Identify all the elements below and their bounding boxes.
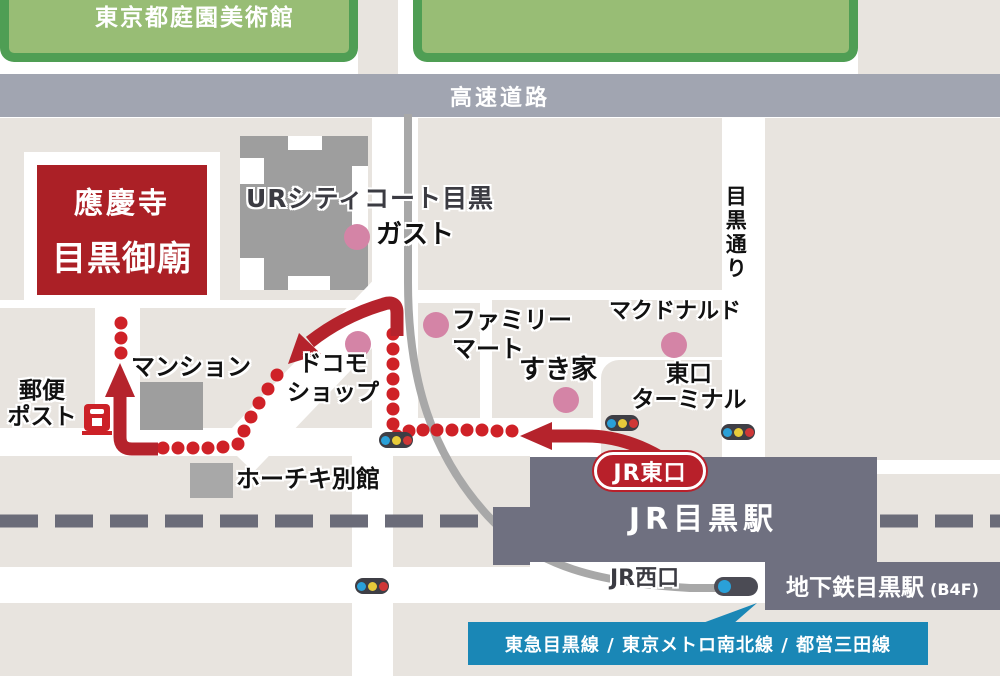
ur-city-court-label: URシティコート目黒 (246, 184, 494, 214)
mansion-label: マンション (131, 353, 251, 382)
postbox-label: 郵便 ポスト (2, 379, 82, 431)
traffic-light-icon (721, 424, 755, 440)
destination-box-inner: 應慶寺 目黒御廟 (37, 165, 207, 295)
traffic-light-icon (379, 432, 413, 448)
poi-dot-gusto (344, 224, 370, 250)
postbox-icon (82, 404, 112, 436)
access-map: 東京都庭園美術館 高速道路 (0, 0, 1000, 676)
traffic-light-icon (355, 578, 389, 594)
subway-station-floor: (B4F) (930, 580, 979, 599)
jr-meguro-station-building (493, 507, 530, 565)
poi-dot-mcdonalds (661, 332, 687, 358)
docomo-label: ドコモ ショップ (283, 350, 383, 408)
train-lines-band: 東急目黒線 / 東京メトロ南北線 / 都営三田線 (468, 622, 928, 665)
jr-west-exit-label: JR西口 (610, 566, 679, 592)
destination-box: 應慶寺 目黒御廟 (24, 152, 220, 308)
subway-station-label: 地下鉄目黒駅 (B4F) (765, 568, 1000, 602)
destination-name-line1: 應慶寺 (74, 180, 170, 222)
sukiya-label: すき家 (519, 355, 597, 386)
mcdonalds-label: マクドナルド (609, 299, 741, 325)
jr-east-exit-badge: JR東口 (594, 452, 706, 490)
poi-dot-family-mart (423, 312, 449, 338)
subway-entrance-icon (714, 577, 758, 596)
poi-dot-sukiya (553, 387, 579, 413)
line-band-pointer (700, 603, 757, 624)
east-terminal-label: 東口 ターミナル (629, 361, 749, 414)
traffic-light-icon (605, 415, 639, 431)
meguro-street-label: 目黒通り (722, 185, 747, 281)
hochiki-annex-label: ホーチキ別館 (236, 465, 380, 494)
destination-name-line2: 目黒御廟 (52, 231, 192, 280)
gusto-label: ガスト (376, 220, 454, 251)
subway-station-name: 地下鉄目黒駅 (786, 568, 924, 602)
station-name: JR目黒駅 (530, 494, 877, 538)
route-arrow-icon (520, 422, 552, 450)
route-arrow-to-temple (120, 397, 158, 449)
